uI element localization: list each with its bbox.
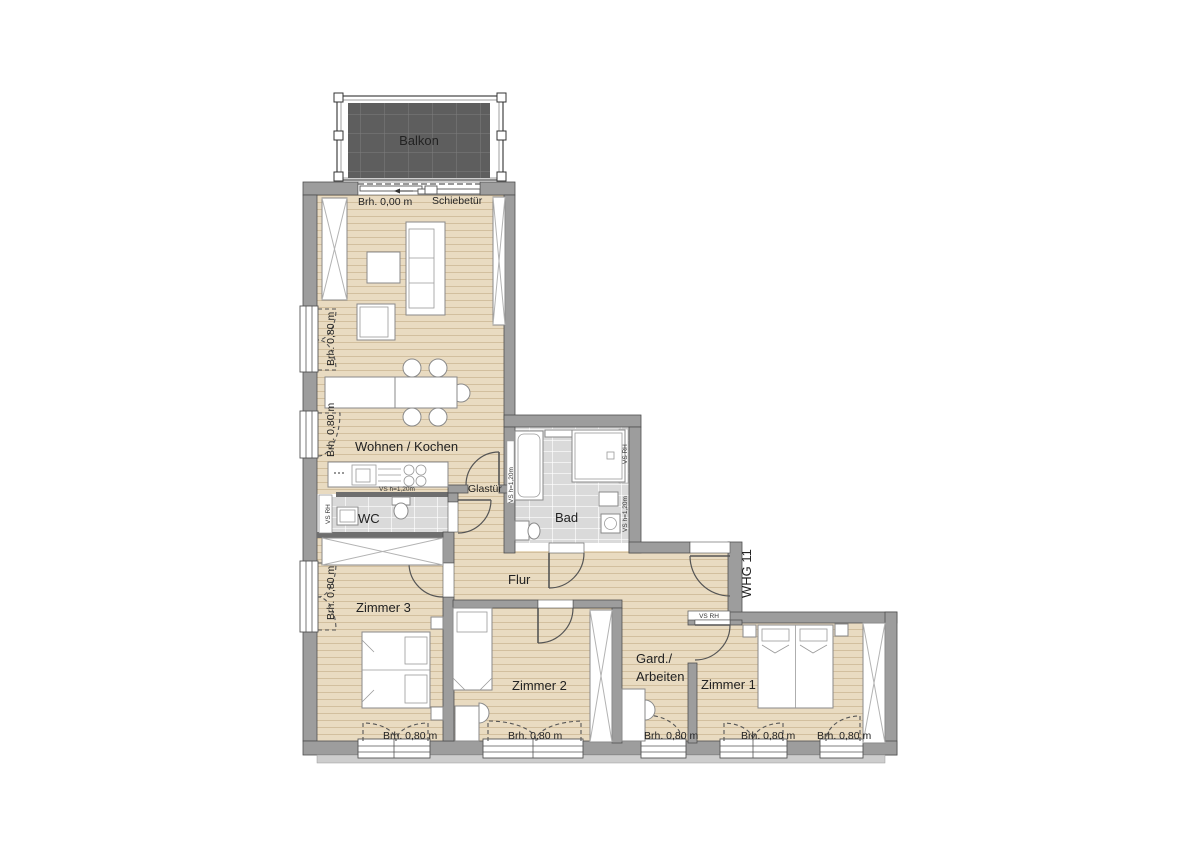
wall-flur-top [629,542,690,553]
wall-left-1 [303,195,317,306]
wall-left-4 [303,632,317,741]
wall-z2-gard [612,608,622,743]
opening-wc-door [448,502,458,532]
floorplan-drawing: Balkon [0,0,1200,849]
label-vs-h120-bad-right: VS h=1,20m [622,496,629,532]
wardrobe-z3 [322,538,443,565]
label-brh-080-gard: Brh. 0,80 m [644,730,699,742]
label-wohnen-kochen: Wohnen / Kochen [355,439,458,454]
label-vs-h120-bad-left: VS h=1,20m [508,467,515,503]
wall-z3-right-upper [443,532,454,563]
wc-toilet-bowl [394,503,408,519]
label-brh-080-left3: Brh. 0,80 m [325,565,337,620]
balcony: Balkon [334,93,506,181]
sofa [406,222,445,315]
wall-top-right [480,182,515,195]
wall-z2-top-left [453,600,538,608]
window-left-3 [300,561,318,632]
bed-z2 [453,608,492,690]
nightstand [431,617,443,629]
label-vs-h120-kitchen: VS h=1,20m [379,486,415,493]
wall-wc-bottom [317,532,454,538]
window-left-1 [300,306,318,372]
wall-z2-top-right [573,600,622,608]
shower [572,430,625,482]
label-brh-080-z3: Brh. 0,80 m [383,730,438,742]
wall-z1-door-left [688,620,695,625]
bad-toilet-bowl [528,523,540,539]
opening-z2-door [538,600,573,608]
label-vs-rh-bad: VS RH [622,444,629,464]
opening-entrance-door [690,542,730,553]
opening-z3-door [443,563,454,597]
wall-left-3 [303,458,317,561]
label-wc: WC [358,511,380,526]
label-zimmer-3: Zimmer 3 [356,600,411,615]
wall-top-left [303,182,358,195]
label-vs-rh-z1: VS RH [699,613,719,620]
bathtub [515,431,543,500]
armchair [357,304,395,340]
bed-z1 [758,625,833,708]
wall-z3-right-lower [443,597,454,741]
bath-shelf [545,430,572,437]
opening-bad-door [549,543,584,553]
label-zimmer-2: Zimmer 2 [512,678,567,693]
wall-wc-right-stub [448,493,458,502]
sliding-door-panel-left [360,186,422,191]
label-gard-2: Arbeiten [636,669,684,684]
label-brh-080-z1b: Brh. 0,80 m [817,730,872,742]
label-brh-080-z2: Brh. 0,80 m [508,730,563,742]
wall-z1-door-right [730,620,742,625]
window-left-2 [300,411,318,458]
wardrobe-z1 [863,623,885,743]
furniture [322,197,885,743]
bad-toilet-cistern [515,521,529,540]
coffee-table [367,252,400,283]
label-vs-rh-wc: VS RH [325,504,332,524]
label-whg-11: WHG 11 [739,549,754,598]
wall-glastuer-stub-left [448,485,468,493]
label-brh-000: Brh. 0,00 m [358,196,413,208]
wall-living-right [504,195,515,420]
washing-machine [601,514,620,533]
wall-bad-right [629,427,641,553]
label-flur: Flur [508,572,531,587]
nightstand [431,707,443,720]
wardrobe-living-right [493,197,505,325]
label-brh-080-z1a: Brh. 0,80 m [741,730,796,742]
floorplan-page: Balkon [0,0,1200,849]
nightstand [835,624,848,636]
label-schiebetuer: Schiebetür [432,195,483,207]
wall-bad-top [504,415,641,427]
wall-z1-top [730,612,897,623]
wall-left-2 [303,372,317,411]
label-gard-1: Gard./ [636,651,673,666]
label-balkon: Balkon [399,133,439,148]
nightstand [743,625,756,637]
bad-basin [599,492,618,506]
sliding-door-overlap [425,186,437,194]
label-brh-080-left1: Brh. 0,80 m [325,311,337,366]
bed-z3 [362,632,430,708]
label-bad: Bad [555,510,578,525]
label-glastuer: Glastür [468,483,502,495]
label-brh-080-left2: Brh. 0,80 m [325,402,337,457]
wardrobe-living-left [322,198,347,300]
wardrobe-z2 [590,610,612,742]
wall-right [885,612,897,755]
kitchen-counter [328,462,448,487]
label-zimmer-1: Zimmer 1 [701,677,756,692]
